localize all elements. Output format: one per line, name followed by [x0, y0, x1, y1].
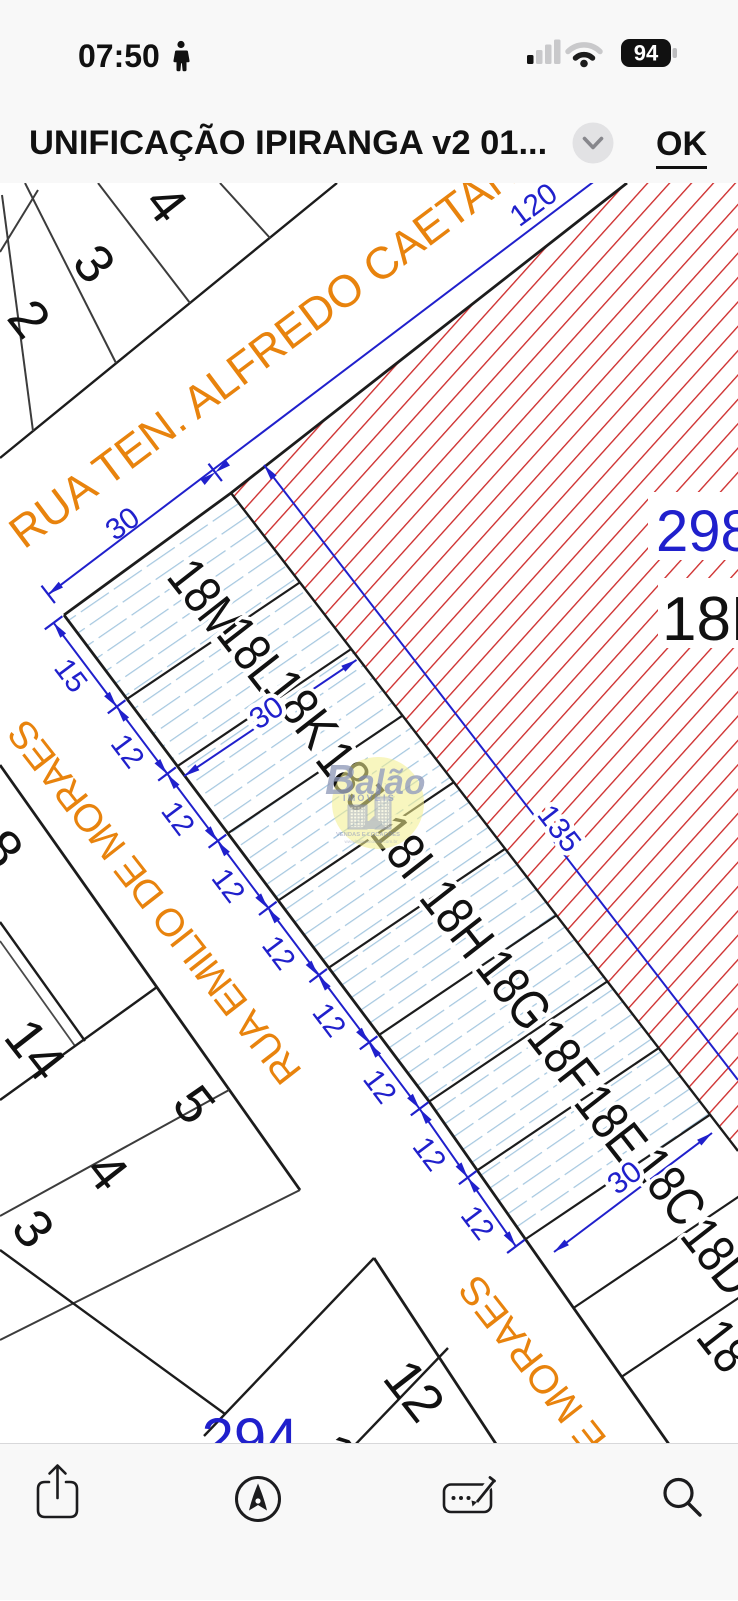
- svg-text:18B: 18B: [662, 585, 738, 654]
- svg-text:294: 294: [202, 1407, 299, 1443]
- svg-text:www.balaoimoveis.com.br: www.balaoimoveis.com.br: [344, 839, 398, 844]
- svg-text:94: 94: [634, 41, 659, 66]
- svg-text:298: 298: [656, 499, 738, 564]
- svg-text:VENDAS E LOCAÇÕES: VENDAS E LOCAÇÕES: [336, 831, 400, 838]
